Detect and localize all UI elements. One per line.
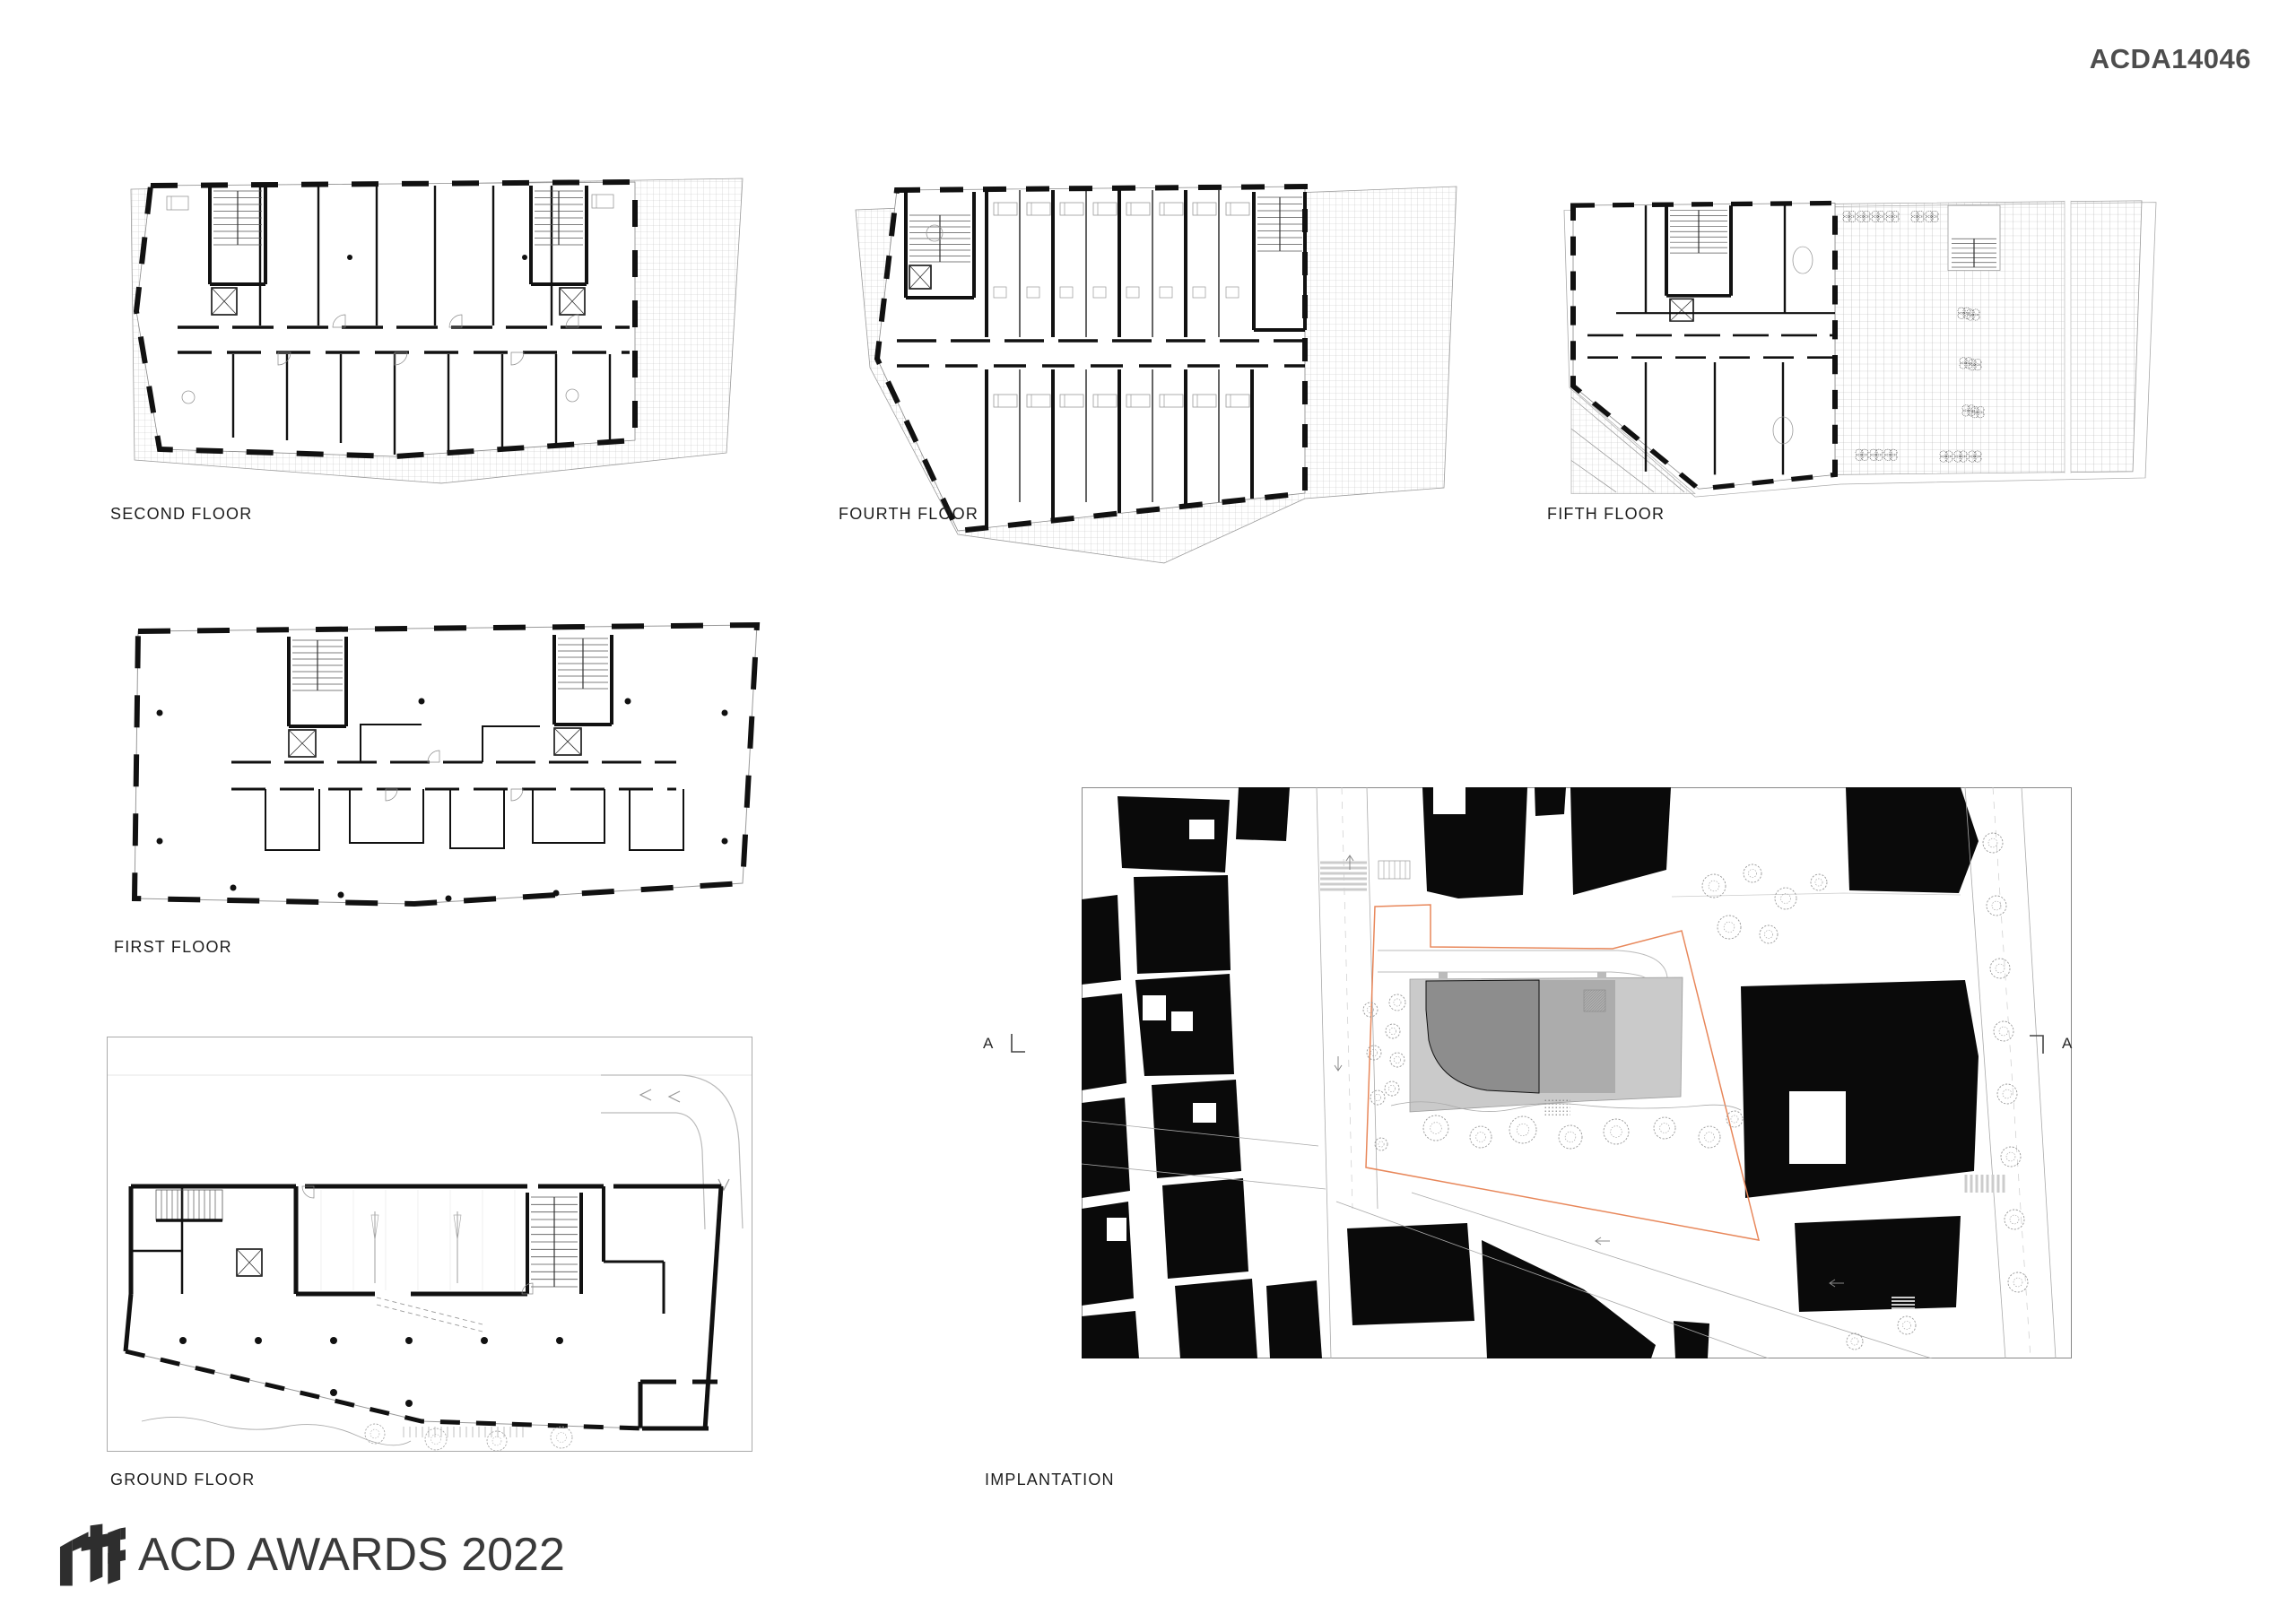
fourth-floor-label: FOURTH FLOOR <box>839 505 978 524</box>
section-letter-right: A <box>2062 1035 2072 1053</box>
ground-floor-label: GROUND FLOOR <box>110 1471 255 1489</box>
presentation-board: ACDA14046 SECOND FLOOR FOURTH FLOOR FIFT… <box>0 0 2296 1623</box>
section-marker-left: A <box>983 1031 1026 1056</box>
awards-logo: ACD AWARDS 2022 <box>58 1523 565 1587</box>
implantation-site-plan <box>1082 787 2072 1358</box>
first-floor-label: FIRST FLOOR <box>114 938 232 957</box>
awards-logo-text: ACD AWARDS 2022 <box>138 1532 565 1578</box>
section-letter-left: A <box>983 1035 993 1053</box>
ground-floor-plan <box>106 1036 753 1453</box>
implantation-label: IMPLANTATION <box>985 1471 1115 1489</box>
project-code: ACDA14046 <box>2090 43 2251 75</box>
fifth-floor-label: FIFTH FLOOR <box>1547 505 1665 524</box>
section-cut-icon <box>2029 1031 2054 1056</box>
fifth-floor-plan <box>1561 193 2161 498</box>
section-marker-right: A <box>2029 1031 2072 1056</box>
second-floor-label: SECOND FLOOR <box>110 505 252 524</box>
section-cut-icon <box>1001 1031 1026 1056</box>
second-floor-plan <box>126 175 749 489</box>
rtf-logo-icon <box>58 1523 126 1587</box>
first-floor-plan <box>126 619 762 933</box>
